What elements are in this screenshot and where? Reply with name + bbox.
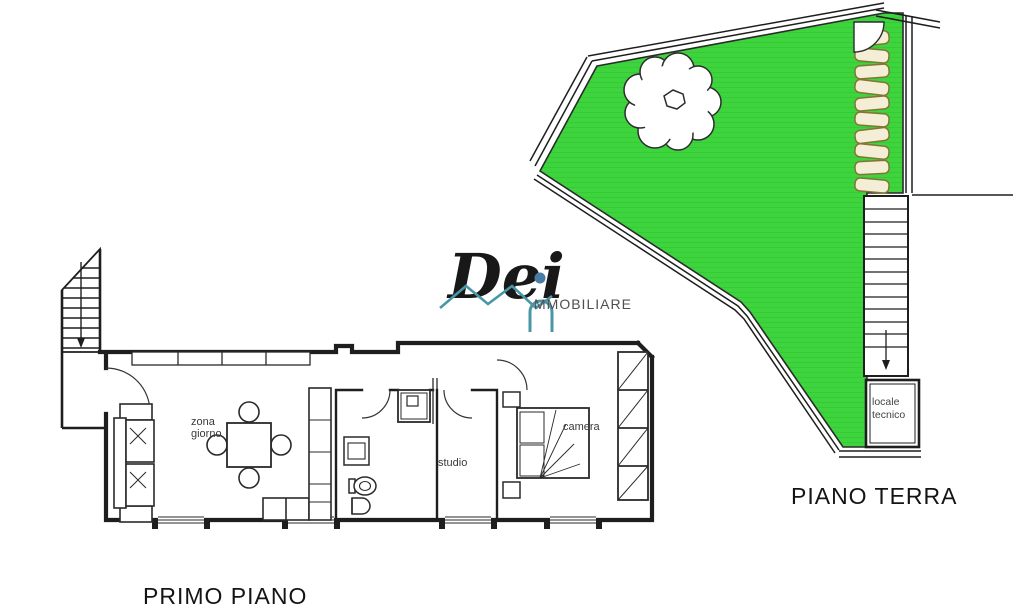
kitchen-counter-icon — [263, 498, 309, 520]
room-label-camera: camera — [563, 421, 600, 433]
window — [152, 514, 210, 529]
window-band-top — [132, 352, 310, 365]
plan-title-primo-piano: PRIMO PIANO — [143, 583, 307, 610]
shower-icon — [398, 390, 430, 422]
studio-door-arc — [444, 390, 472, 418]
external-staircase — [864, 196, 908, 376]
garden-area — [540, 13, 903, 447]
sofa-icon — [114, 404, 154, 522]
ground-floor-plan — [530, 3, 1013, 457]
room-label-zona-giorno: zona giorno — [191, 416, 222, 440]
floor-plan-page: zona giorno studio camera locale tecnico… — [0, 0, 1024, 611]
bidet-icon — [352, 498, 370, 514]
dining-table-icon — [207, 402, 291, 488]
wardrobe-icon — [618, 352, 648, 500]
plan-title-piano-terra: PIANO TERRA — [791, 483, 958, 510]
room-label-studio: studio — [438, 457, 467, 469]
camera-door-arc — [497, 360, 527, 390]
room-label-locale-tecnico: locale tecnico — [872, 396, 905, 422]
internal-staircase — [62, 249, 106, 428]
cabinet-column-icon — [309, 388, 331, 520]
bath-door-arc — [362, 390, 390, 418]
bed-icon — [517, 408, 589, 478]
sink-icon — [344, 437, 369, 465]
window — [439, 514, 497, 529]
toilet-icon — [349, 477, 376, 495]
logo-suffix-text: MMOBILIARE — [534, 296, 632, 312]
window — [544, 514, 602, 529]
agency-logo: Dei MMOBILIARE — [436, 250, 666, 352]
logo-dot-icon — [535, 273, 546, 284]
